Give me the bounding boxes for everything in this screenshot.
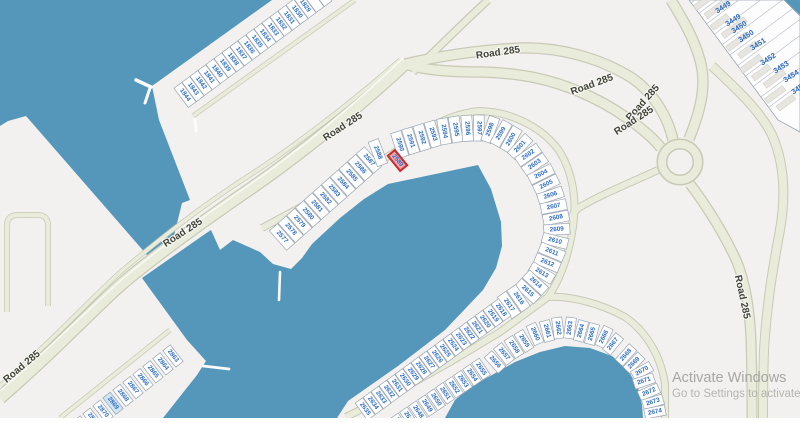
svg-text:2596: 2596 — [463, 121, 471, 136]
svg-text:2597: 2597 — [475, 121, 482, 136]
svg-text:Activate Windows: Activate Windows — [672, 370, 786, 386]
svg-text:Go to Settings to activate W: Go to Settings to activate W — [672, 388, 800, 400]
svg-text:2609: 2609 — [550, 226, 565, 234]
